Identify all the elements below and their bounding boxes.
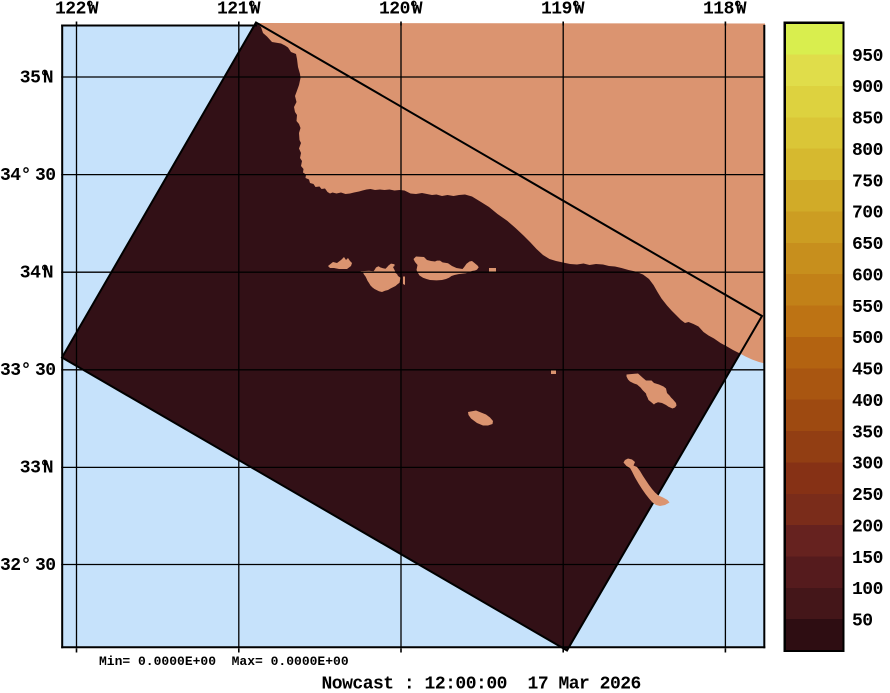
svg-text:120°W: 120°W — [379, 0, 423, 20]
svg-text:30: 30 — [35, 166, 56, 186]
svg-text:250: 250 — [852, 486, 883, 506]
svg-text:800: 800 — [852, 141, 883, 161]
svg-text:600: 600 — [852, 267, 883, 287]
svg-text:32°: 32° — [0, 556, 31, 576]
svg-text:550: 550 — [852, 298, 883, 318]
svg-text:Nowcast : 12:00:00 17 Mar 202: Nowcast : 12:00:00 17 Mar 2026 — [322, 675, 641, 693]
svg-text:118°W: 118°W — [703, 0, 747, 20]
svg-text:50: 50 — [852, 612, 873, 632]
svg-text:Min= 0.0000E+00 Max= 0.0000E+: Min= 0.0000E+00 Max= 0.0000E+00 — [99, 654, 349, 669]
svg-text:34°N: 34°N — [20, 264, 53, 284]
svg-text:30: 30 — [35, 556, 56, 576]
svg-text:200: 200 — [852, 517, 883, 537]
svg-text:400: 400 — [852, 392, 883, 412]
svg-text:33°N: 33°N — [20, 459, 53, 479]
svg-text:122°W: 122°W — [55, 0, 99, 20]
svg-text:33°: 33° — [0, 361, 31, 381]
svg-text:35°N: 35°N — [20, 69, 53, 89]
svg-text:650: 650 — [852, 235, 883, 255]
svg-text:121°W: 121°W — [217, 0, 261, 20]
svg-text:100: 100 — [852, 580, 883, 600]
svg-text:500: 500 — [852, 329, 883, 349]
svg-text:34°: 34° — [0, 166, 31, 186]
svg-text:30: 30 — [35, 361, 56, 381]
svg-text:300: 300 — [852, 455, 883, 475]
svg-text:850: 850 — [852, 110, 883, 130]
svg-text:750: 750 — [852, 172, 883, 192]
svg-text:900: 900 — [852, 78, 883, 98]
svg-text:119°W: 119°W — [541, 0, 585, 20]
svg-text:450: 450 — [852, 361, 883, 381]
svg-text:700: 700 — [852, 204, 883, 224]
svg-text:350: 350 — [852, 423, 883, 443]
svg-text:950: 950 — [852, 47, 883, 67]
svg-text:150: 150 — [852, 549, 883, 569]
